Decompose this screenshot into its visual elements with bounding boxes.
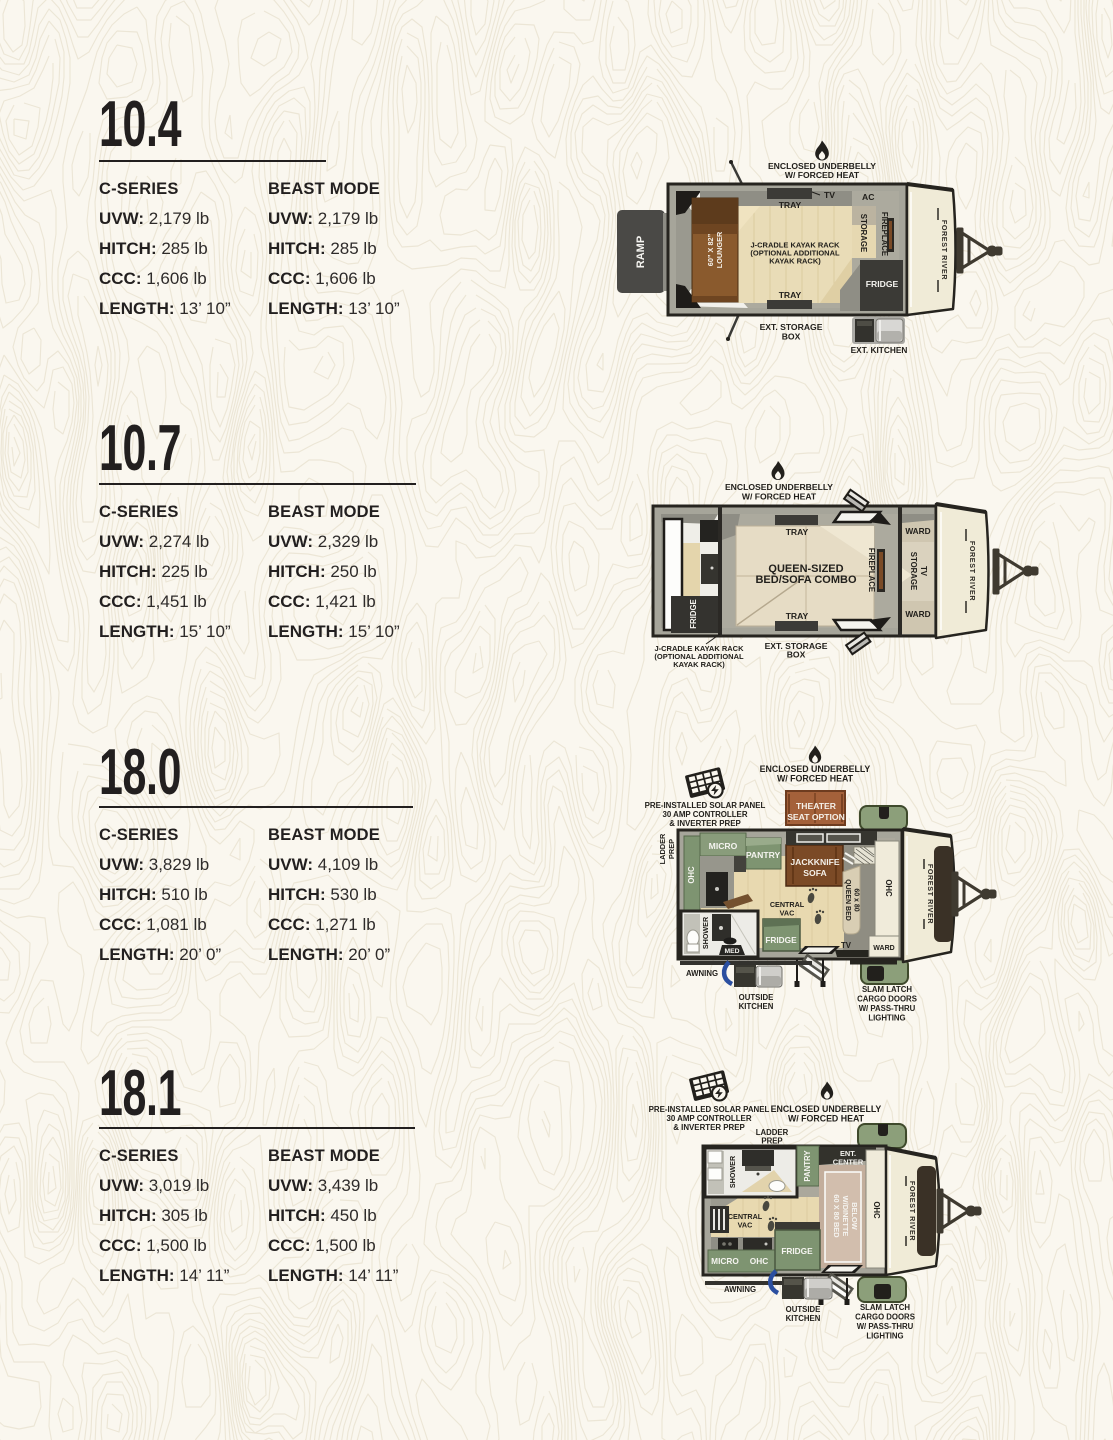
svg-text:WARD: WARD [873,945,894,952]
svg-text:KAYAK RACK): KAYAK RACK) [673,660,725,669]
svg-text:W/ FORCED HEAT: W/ FORCED HEAT [785,170,860,180]
svg-text:FRIDGE: FRIDGE [765,935,797,945]
svg-text:W/DINETTE: W/DINETTE [841,1196,850,1237]
svg-text:FIREPLACE: FIREPLACE [867,548,876,592]
svg-text:FOREST RIVER: FOREST RIVER [908,1181,917,1242]
svg-text:OHC: OHC [884,879,893,897]
svg-text:SOFA: SOFA [803,868,826,878]
svg-text:TRAY: TRAY [786,611,809,621]
svg-text:SLAM LATCH: SLAM LATCH [860,1303,910,1312]
svg-text:TV: TV [919,566,928,577]
svg-text:W/ FORCED HEAT: W/ FORCED HEAT [788,1114,865,1124]
svg-text:60 x 80: 60 x 80 [853,888,860,911]
svg-text:W/ PASS-THRU: W/ PASS-THRU [857,1322,914,1331]
svg-text:OUTSIDE: OUTSIDE [786,1305,821,1314]
svg-text:30 AMP CONTROLLER: 30 AMP CONTROLLER [666,1114,751,1123]
svg-text:WARD: WARD [905,526,930,536]
svg-text:ENCLOSED UNDERBELLY: ENCLOSED UNDERBELLY [760,764,871,774]
svg-text:EXT. STORAGE: EXT. STORAGE [760,322,823,332]
svg-text:AC: AC [862,192,874,202]
svg-text:BED/SOFA COMBO: BED/SOFA COMBO [755,574,856,586]
svg-text:ENCLOSED UNDERBELLY: ENCLOSED UNDERBELLY [725,482,833,492]
svg-text:OUTSIDE: OUTSIDE [739,993,774,1002]
svg-text:60 X 80 BED: 60 X 80 BED [832,1194,841,1238]
svg-text:JACKKNIFE: JACKKNIFE [790,857,839,867]
svg-text:THEATER: THEATER [796,801,837,811]
svg-text:PANTRY: PANTRY [803,1150,812,1182]
svg-text:PRE-INSTALLED SOLAR PANEL: PRE-INSTALLED SOLAR PANEL [645,801,766,810]
svg-text:LIGHTING: LIGHTING [868,1014,905,1023]
svg-text:ENCLOSED UNDERBELLY: ENCLOSED UNDERBELLY [771,1104,882,1114]
svg-text:PREP: PREP [761,1137,782,1146]
svg-text:SHOWER: SHOWER [701,916,710,949]
svg-text:KITCHEN: KITCHEN [786,1314,821,1323]
svg-text:FOREST RIVER: FOREST RIVER [940,220,949,281]
svg-text:OHC: OHC [687,866,696,884]
svg-text:TRAY: TRAY [779,200,802,210]
svg-text:FOREST RIVER: FOREST RIVER [968,541,977,602]
svg-text:OHC: OHC [750,1256,768,1266]
svg-text:60” X 82”: 60” X 82” [706,233,715,266]
svg-text:CARGO DOORS: CARGO DOORS [857,995,917,1004]
svg-text:W/ PASS-THRU: W/ PASS-THRU [859,1004,916,1013]
svg-text:KITCHEN: KITCHEN [739,1002,774,1011]
svg-text:QUEEN BED: QUEEN BED [844,879,851,921]
svg-text:W/ FORCED HEAT: W/ FORCED HEAT [777,774,854,784]
svg-text:VAC: VAC [738,1221,753,1230]
svg-text:AWNING: AWNING [686,969,718,978]
svg-text:RAMP: RAMP [635,236,647,268]
svg-text:LIGHTING: LIGHTING [866,1332,903,1341]
svg-text:TRAY: TRAY [786,527,809,537]
svg-text:TRAY: TRAY [779,290,802,300]
svg-text:PANTRY: PANTRY [746,850,781,860]
svg-text:LADDER: LADDER [658,833,667,864]
svg-text:FRIDGE: FRIDGE [866,279,899,289]
svg-text:TV: TV [824,190,835,200]
svg-text:MICRO: MICRO [711,1256,739,1266]
svg-text:PREP: PREP [667,839,676,859]
svg-text:PRE-INSTALLED SOLAR PANEL: PRE-INSTALLED SOLAR PANEL [649,1105,770,1114]
svg-text:TV: TV [841,941,852,950]
svg-text:SEAT OPTION: SEAT OPTION [787,812,845,822]
svg-text:OHC: OHC [872,1201,881,1219]
svg-text:& INVERTER PREP: & INVERTER PREP [673,1123,744,1132]
svg-text:VAC: VAC [780,909,795,918]
svg-text:AWNING: AWNING [724,1285,756,1294]
svg-text:STORAGE: STORAGE [909,552,918,590]
svg-text:W/ FORCED HEAT: W/ FORCED HEAT [742,492,817,502]
svg-text:LOUNGER: LOUNGER [715,231,724,268]
svg-text:& INVERTER PREP: & INVERTER PREP [669,819,740,828]
svg-text:MED: MED [724,948,739,955]
svg-text:FOREST RIVER: FOREST RIVER [926,864,935,925]
svg-text:BELOW: BELOW [850,1202,859,1230]
svg-text:30 AMP CONTROLLER: 30 AMP CONTROLLER [662,810,747,819]
svg-text:STORAGE: STORAGE [859,214,868,252]
svg-text:EXT. KITCHEN: EXT. KITCHEN [851,345,908,355]
svg-text:WARD: WARD [905,609,930,619]
svg-text:SHOWER: SHOWER [728,1155,737,1188]
svg-text:BOX: BOX [782,332,801,342]
svg-text:CARGO DOORS: CARGO DOORS [855,1313,915,1322]
svg-text:BOX: BOX [787,650,806,660]
svg-text:MICRO: MICRO [709,841,738,851]
svg-text:KAYAK RACK): KAYAK RACK) [769,257,821,266]
svg-text:FRIDGE: FRIDGE [689,599,698,628]
svg-text:SLAM LATCH: SLAM LATCH [862,985,912,994]
svg-text:FRIDGE: FRIDGE [781,1246,813,1256]
